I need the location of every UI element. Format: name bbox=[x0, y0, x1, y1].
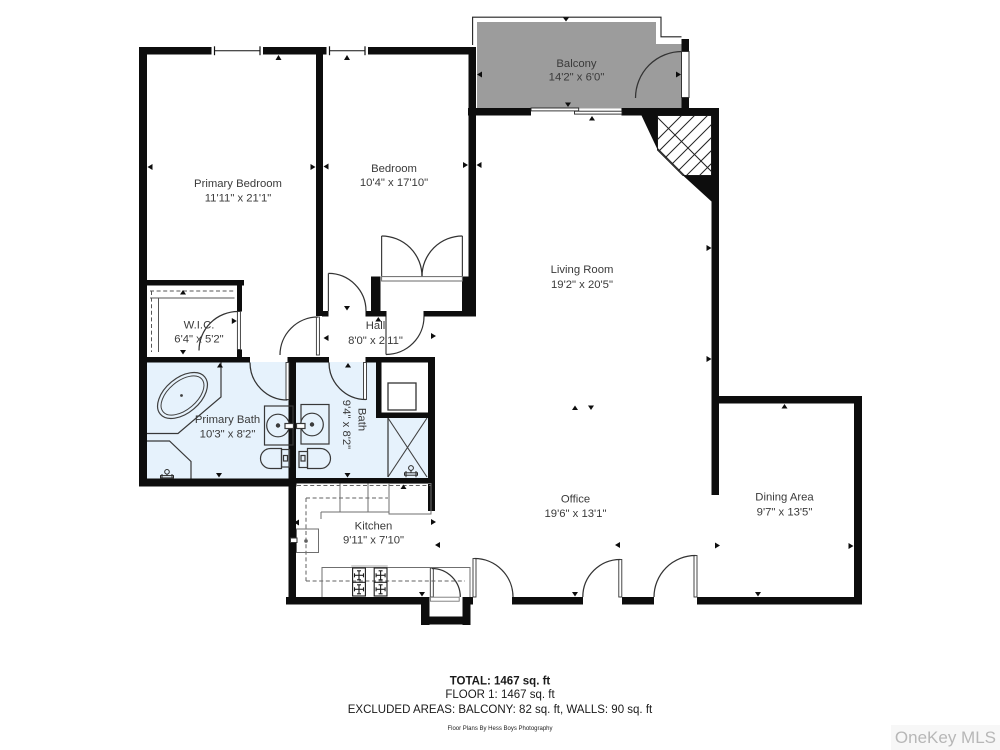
svg-text:Floor Plans By Hess Boys Photo: Floor Plans By Hess Boys Photography bbox=[447, 726, 552, 732]
svg-text:Living Room: Living Room bbox=[551, 264, 614, 276]
svg-text:Hall: Hall bbox=[366, 320, 385, 332]
svg-text:W.I.C.: W.I.C. bbox=[184, 320, 215, 332]
svg-text:OneKey MLS: OneKey MLS bbox=[895, 728, 996, 747]
svg-text:Bedroom: Bedroom bbox=[371, 163, 417, 175]
svg-text:11'11" x 21'1": 11'11" x 21'1" bbox=[205, 192, 272, 204]
svg-text:19'6" x 13'1": 19'6" x 13'1" bbox=[545, 508, 607, 520]
svg-text:Bath: Bath bbox=[356, 408, 368, 431]
svg-text:9'11" x 7'10": 9'11" x 7'10" bbox=[343, 535, 404, 547]
svg-text:14'2" x 6'0": 14'2" x 6'0" bbox=[549, 72, 605, 84]
svg-text:Balcony: Balcony bbox=[556, 58, 597, 70]
svg-text:Dining Area: Dining Area bbox=[755, 492, 814, 504]
svg-text:FLOOR 1: 1467 sq. ft: FLOOR 1: 1467 sq. ft bbox=[445, 689, 555, 701]
svg-text:9'4" x 8'2": 9'4" x 8'2" bbox=[340, 400, 352, 449]
svg-text:9'7" x 13'5": 9'7" x 13'5" bbox=[757, 507, 813, 519]
svg-text:EXCLUDED AREAS: BALCONY: 82 sq: EXCLUDED AREAS: BALCONY: 82 sq. ft, WALL… bbox=[348, 704, 653, 716]
svg-text:8'0" x 2'11": 8'0" x 2'11" bbox=[348, 335, 403, 347]
svg-text:10'4" x 17'10": 10'4" x 17'10" bbox=[360, 177, 428, 189]
svg-text:Kitchen: Kitchen bbox=[355, 521, 393, 533]
svg-text:Office: Office bbox=[561, 494, 590, 506]
svg-text:10'3" x 8'2": 10'3" x 8'2" bbox=[200, 429, 256, 441]
svg-text:Primary Bedroom: Primary Bedroom bbox=[194, 178, 282, 190]
svg-text:Primary Bath: Primary Bath bbox=[195, 414, 260, 426]
svg-text:6'4" x 5'2": 6'4" x 5'2" bbox=[174, 334, 223, 346]
svg-text:19'2" x 20'5": 19'2" x 20'5" bbox=[551, 279, 613, 291]
svg-text:TOTAL: 1467 sq. ft: TOTAL: 1467 sq. ft bbox=[450, 676, 551, 688]
